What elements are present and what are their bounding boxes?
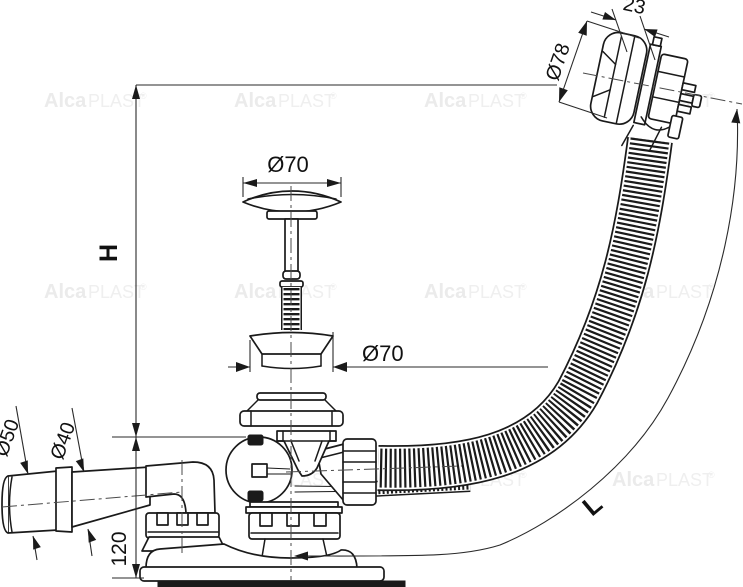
outlet-pipe-large-section [8,471,58,533]
outlet-pipe [2,467,150,533]
technical-drawing-page: Alca PLAST ® [0,0,743,587]
outlet-elbow [142,462,226,551]
base-gasket-band [158,581,405,587]
dim-label-120: 120 [108,531,131,566]
drain-base-flange [140,567,384,581]
dimension-h: H [95,85,557,437]
dim-label-d70-flange: Ø70 [362,341,404,366]
dim-label-d50: Ø50 [0,416,24,459]
plug-cap-collar [267,211,317,219]
retaining-clip-bottom [248,491,263,501]
dim-label-d70-cap: Ø70 [267,152,309,177]
retaining-clip-top [248,435,263,445]
dim-label-d78: Ø78 [542,41,575,84]
dim-label-d40: Ø40 [47,419,81,462]
gasket-lower [246,507,342,513]
hose-union-nut [343,439,376,505]
outlet-pipe-end-cap [2,476,8,533]
outlet-pipe-collar [56,467,72,532]
knob-cable-bolt [692,94,702,107]
dim-label-L: L [576,488,608,521]
dim-label-23: 23 [621,0,647,19]
corrugated-hose [378,140,650,468]
dim-label-H: H [95,244,123,262]
cable-anchor [252,464,267,477]
bath-waste-technical-drawing: Alca PLAST ® [0,0,743,587]
outlet-pipe-small-section [72,467,150,527]
drain-body [140,431,405,587]
